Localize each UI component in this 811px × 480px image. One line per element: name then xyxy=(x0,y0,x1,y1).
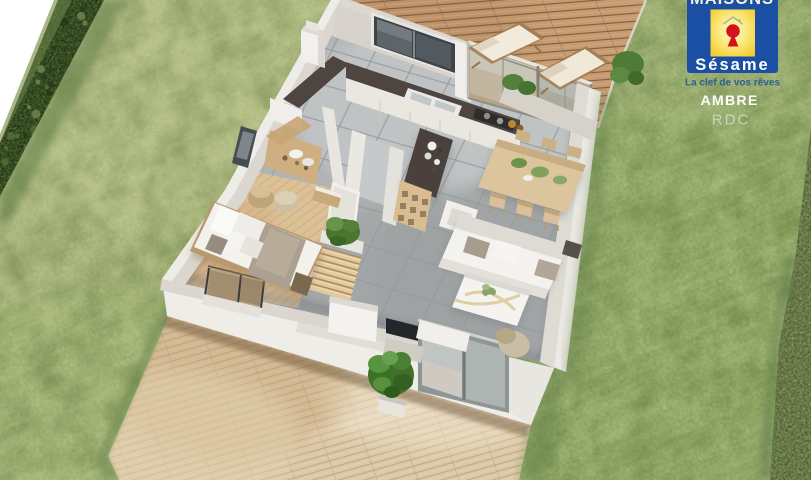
svg-text:AMBRE: AMBRE xyxy=(700,93,758,109)
svg-text:La clef de vos rêves: La clef de vos rêves xyxy=(685,78,780,89)
svg-text:RDC: RDC xyxy=(712,112,751,129)
svg-text:Sésame: Sésame xyxy=(695,56,769,74)
svg-text:MAISONS: MAISONS xyxy=(690,0,774,8)
